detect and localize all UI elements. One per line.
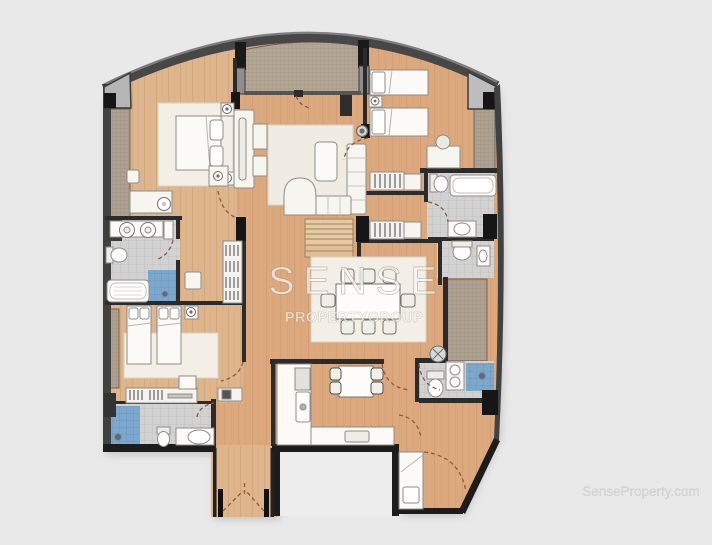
svg-text:PROPERTYGROUP: PROPERTYGROUP — [285, 310, 423, 326]
svg-text:SENSE: SENSE — [268, 260, 445, 303]
svg-text:SenseProperty.com: SenseProperty.com — [582, 484, 700, 499]
